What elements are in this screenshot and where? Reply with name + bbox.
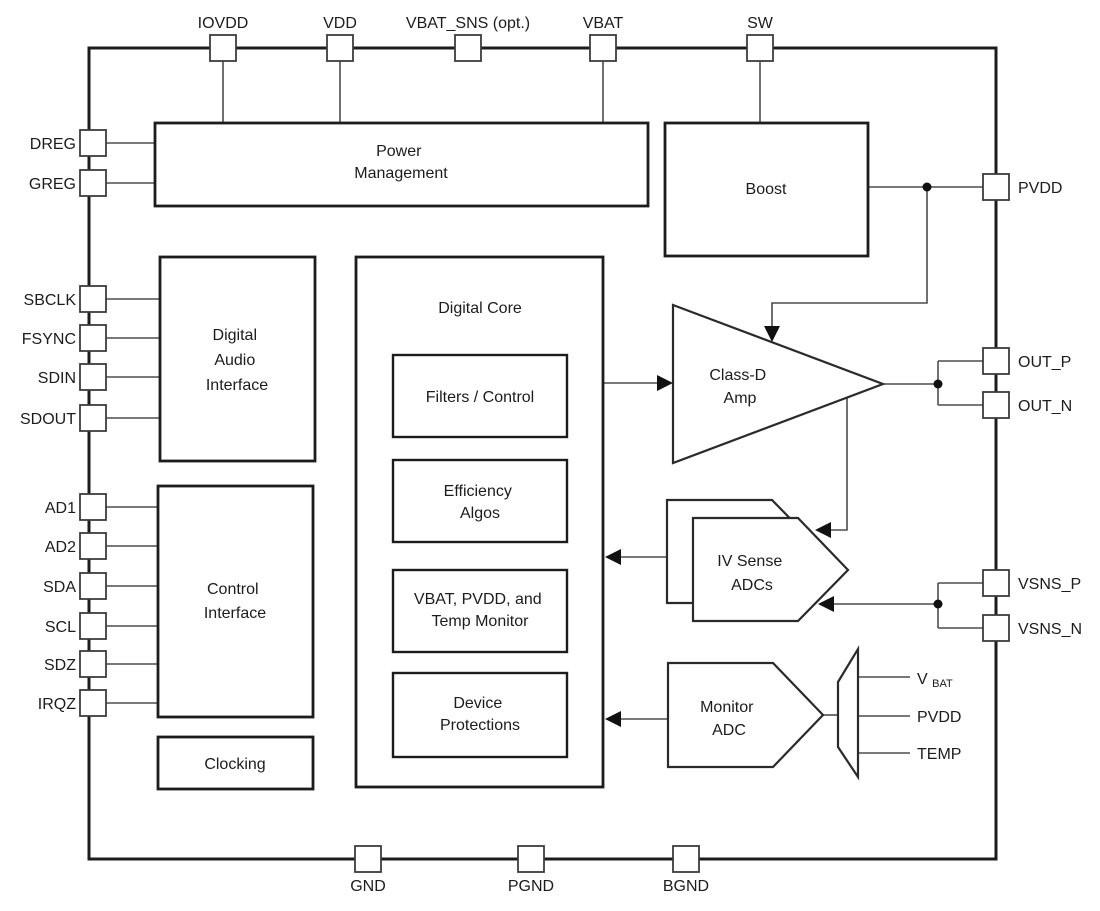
pin-label-irqz: IRQZ xyxy=(38,696,76,713)
pin-dreg xyxy=(80,130,106,156)
pin-label-vbat-sns: VBAT_SNS (opt.) xyxy=(406,15,530,32)
pin-pvdd xyxy=(983,174,1009,200)
pin-label-out-n: OUT_N xyxy=(1018,398,1072,415)
pin-sdz xyxy=(80,651,106,677)
pin-label-scl: SCL xyxy=(45,619,76,636)
pin-fsync xyxy=(80,325,106,351)
pin-sda xyxy=(80,573,106,599)
pin-label-gnd: GND xyxy=(350,878,386,895)
pin-label-pgnd: PGND xyxy=(508,878,554,895)
pin-label-sw: SW xyxy=(747,15,774,32)
mux-input-temp-label: TEMP xyxy=(917,746,961,763)
pin-label-sbclk: SBCLK xyxy=(24,292,77,309)
junction-dot-vsns xyxy=(934,600,943,609)
junction-dot-out xyxy=(934,380,943,389)
pin-label-fsync: FSYNC xyxy=(22,331,76,348)
pin-sdout xyxy=(80,405,106,431)
device-protections-block xyxy=(393,673,567,757)
pin-out-p xyxy=(983,348,1009,374)
pin-ad2 xyxy=(80,533,106,559)
control-interface-block xyxy=(158,486,313,717)
pin-ad1 xyxy=(80,494,106,520)
digital-audio-interface-label: Digital Audio Interface xyxy=(206,327,268,394)
filters-control-label: Filters / Control xyxy=(426,389,534,406)
pin-vsns-p xyxy=(983,570,1009,596)
pin-vsns-n xyxy=(983,615,1009,641)
pin-out-n xyxy=(983,392,1009,418)
pin-label-pvdd: PVDD xyxy=(1018,180,1062,197)
arrowhead-core-to-amp xyxy=(657,375,673,391)
pin-sw xyxy=(747,35,773,61)
arrowhead-ivsense-to-core xyxy=(605,549,621,565)
vbat-pvdd-temp-monitor-block xyxy=(393,570,567,652)
pin-greg xyxy=(80,170,106,196)
efficiency-algos-block xyxy=(393,460,567,542)
block-diagram-svg: IOVDD VDD VBAT_SNS (opt.) VBAT SW DREG G… xyxy=(0,0,1100,906)
pin-label-vsns-n: VSNS_N xyxy=(1018,621,1082,638)
pin-label-vbat: VBAT xyxy=(583,15,624,32)
pin-sdin xyxy=(80,364,106,390)
wire-amp-to-ivsense xyxy=(829,397,847,530)
pin-sbclk xyxy=(80,286,106,312)
pin-irqz xyxy=(80,690,106,716)
mux-input-vbat-label: V BAT xyxy=(917,671,953,690)
pin-label-sdout: SDOUT xyxy=(20,411,76,428)
pin-label-sdin: SDIN xyxy=(38,370,76,387)
arrowhead-monitor-to-core xyxy=(605,711,621,727)
pin-vbat-sns xyxy=(455,35,481,61)
pin-scl xyxy=(80,613,106,639)
arrowhead-amp-to-ivsense xyxy=(815,522,831,538)
pin-vbat xyxy=(590,35,616,61)
pin-iovdd xyxy=(210,35,236,61)
pin-bgnd xyxy=(673,846,699,872)
digital-core-title: Digital Core xyxy=(438,300,522,317)
pin-label-sda: SDA xyxy=(43,579,76,596)
pin-label-vdd: VDD xyxy=(323,15,357,32)
pin-label-greg: GREG xyxy=(29,176,76,193)
pin-label-dreg: DREG xyxy=(30,136,76,153)
pin-label-bgnd: BGND xyxy=(663,878,709,895)
block-diagram: IOVDD VDD VBAT_SNS (opt.) VBAT SW DREG G… xyxy=(0,0,1100,906)
boost-label: Boost xyxy=(746,181,787,198)
pin-label-iovdd: IOVDD xyxy=(198,15,249,32)
pin-label-vsns-p: VSNS_P xyxy=(1018,576,1081,593)
pin-label-sdz: SDZ xyxy=(44,657,76,674)
pin-gnd xyxy=(355,846,381,872)
clocking-label: Clocking xyxy=(204,756,265,773)
pin-pgnd xyxy=(518,846,544,872)
pin-label-ad2: AD2 xyxy=(45,539,76,556)
pin-label-ad1: AD1 xyxy=(45,500,76,517)
junction-dot-pvdd xyxy=(923,183,932,192)
mux-input-pvdd-label: PVDD xyxy=(917,709,961,726)
pin-vdd xyxy=(327,35,353,61)
mux-shape xyxy=(838,649,858,777)
pin-label-out-p: OUT_P xyxy=(1018,354,1071,371)
